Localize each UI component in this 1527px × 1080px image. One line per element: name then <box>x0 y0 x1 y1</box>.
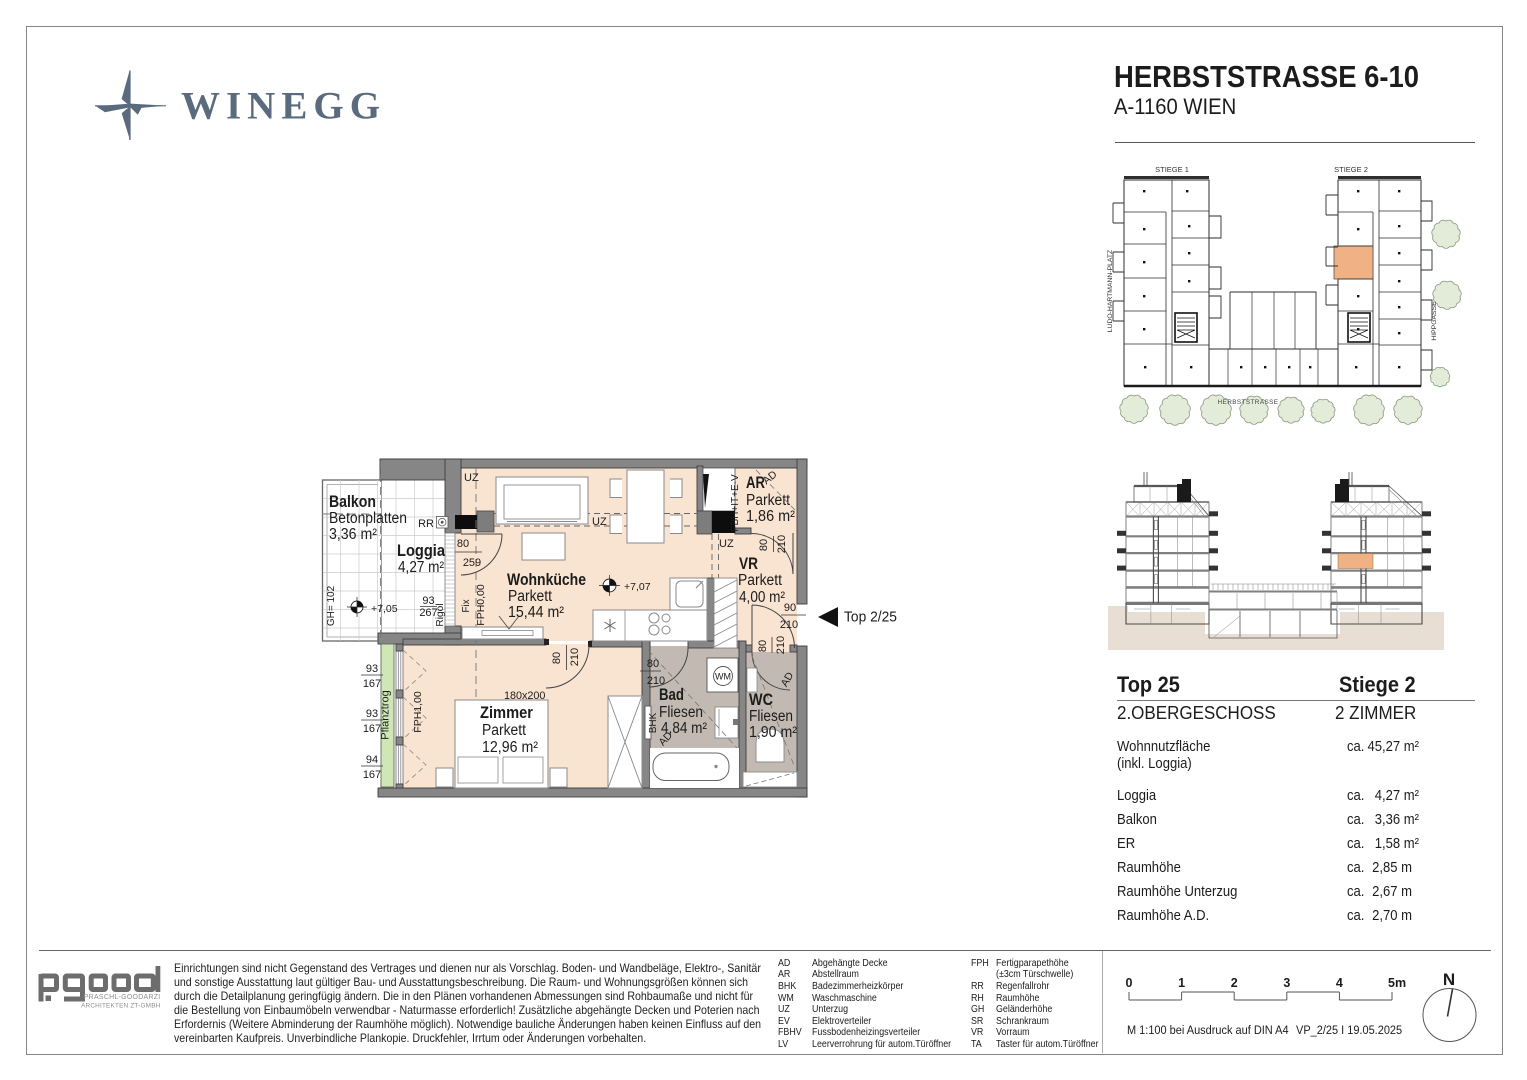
svg-text:4: 4 <box>1336 976 1343 990</box>
svg-text:Fliesen: Fliesen <box>659 704 703 721</box>
svg-text:93: 93 <box>366 708 378 720</box>
svg-text:94: 94 <box>366 754 378 766</box>
svg-text:Pflanztrog: Pflanztrog <box>380 690 392 740</box>
svg-text:Parkett: Parkett <box>738 572 783 589</box>
svg-text:UZ: UZ <box>592 516 607 528</box>
svg-text:VR: VR <box>739 555 758 573</box>
svg-text:Fix: Fix <box>461 599 472 612</box>
svg-text:1,90 m²: 1,90 m² <box>749 724 797 741</box>
svg-text:12,96 m²: 12,96 m² <box>482 739 538 756</box>
svg-text:Fliesen: Fliesen <box>749 708 793 725</box>
svg-text:267: 267 <box>419 607 437 619</box>
svg-text:Loggia: Loggia <box>397 542 446 560</box>
svg-text:STIEGE 2: STIEGE 2 <box>1334 165 1368 174</box>
svg-text:15,44 m²: 15,44 m² <box>508 604 564 621</box>
svg-text:N: N <box>1443 970 1455 989</box>
svg-text:HERBSTSTRASSE: HERBSTSTRASSE <box>1218 399 1279 406</box>
svg-text:UZ: UZ <box>719 538 734 550</box>
svg-text:UZ: UZ <box>464 472 479 484</box>
svg-text:ARCHITEKTEN ZT-GMBH: ARCHITEKTEN ZT-GMBH <box>81 1003 161 1010</box>
svg-text:BHK: BHK <box>648 712 659 733</box>
svg-text:FPH0,00: FPH0,00 <box>475 584 487 626</box>
svg-text:Parkett: Parkett <box>482 722 527 739</box>
svg-text:210: 210 <box>775 636 787 654</box>
svg-text:FBH+IT+E-V: FBH+IT+E-V <box>730 474 741 532</box>
svg-text:167: 167 <box>363 678 381 690</box>
svg-text:Wohnküche: Wohnküche <box>507 571 586 589</box>
svg-text:Parkett: Parkett <box>508 588 553 605</box>
svg-text:80: 80 <box>457 538 469 550</box>
svg-text:210: 210 <box>776 535 788 553</box>
svg-text:167: 167 <box>363 769 381 781</box>
svg-text:+7,07: +7,07 <box>624 581 651 593</box>
svg-text:WINEGG: WINEGG <box>181 85 386 128</box>
svg-text:3,36 m²: 3,36 m² <box>329 526 377 543</box>
svg-text:Balkon: Balkon <box>329 493 376 511</box>
svg-text:WM: WM <box>715 672 731 682</box>
svg-text:80: 80 <box>551 652 563 664</box>
svg-text:4,27 m²: 4,27 m² <box>398 559 444 576</box>
svg-text:1,86 m²: 1,86 m² <box>746 508 795 525</box>
svg-text:80: 80 <box>757 640 769 652</box>
svg-text:80: 80 <box>647 658 659 670</box>
svg-text:Top 2/25: Top 2/25 <box>844 610 897 626</box>
svg-text:93: 93 <box>366 663 378 675</box>
svg-text:210: 210 <box>569 648 581 666</box>
svg-text:Zimmer: Zimmer <box>480 704 534 722</box>
svg-text:+7,05: +7,05 <box>371 603 398 615</box>
svg-text:167: 167 <box>363 723 381 735</box>
svg-text:0: 0 <box>1126 976 1133 990</box>
svg-text:WC: WC <box>749 691 773 709</box>
svg-text:90: 90 <box>784 602 796 614</box>
svg-text:93: 93 <box>422 595 434 607</box>
svg-text:5m: 5m <box>1388 976 1406 990</box>
svg-text:259: 259 <box>463 557 481 569</box>
svg-text:Bad: Bad <box>659 686 684 704</box>
svg-text:2: 2 <box>1231 976 1238 990</box>
svg-text:180x200: 180x200 <box>504 690 545 702</box>
svg-text:FPH1,00: FPH1,00 <box>412 691 424 733</box>
svg-text:HIPPGASSE: HIPPGASSE <box>1431 301 1438 341</box>
svg-text:STIEGE 1: STIEGE 1 <box>1155 165 1189 174</box>
svg-text:LUDO-HARTMANN-PLATZ: LUDO-HARTMANN-PLATZ <box>1107 250 1114 332</box>
svg-text:Parkett: Parkett <box>746 492 791 509</box>
svg-text:3: 3 <box>1283 976 1290 990</box>
svg-text:210: 210 <box>647 675 665 687</box>
svg-text:RR: RR <box>418 518 434 530</box>
svg-text:80: 80 <box>758 539 770 551</box>
svg-text:GH= 102: GH= 102 <box>326 585 337 626</box>
svg-text:1: 1 <box>1178 976 1185 990</box>
svg-text:210: 210 <box>780 619 798 631</box>
svg-text:Betonplatten: Betonplatten <box>329 510 407 527</box>
svg-text:PRASCHL-GOODARZI: PRASCHL-GOODARZI <box>84 994 161 1001</box>
svg-text:4,00 m²: 4,00 m² <box>739 589 785 606</box>
